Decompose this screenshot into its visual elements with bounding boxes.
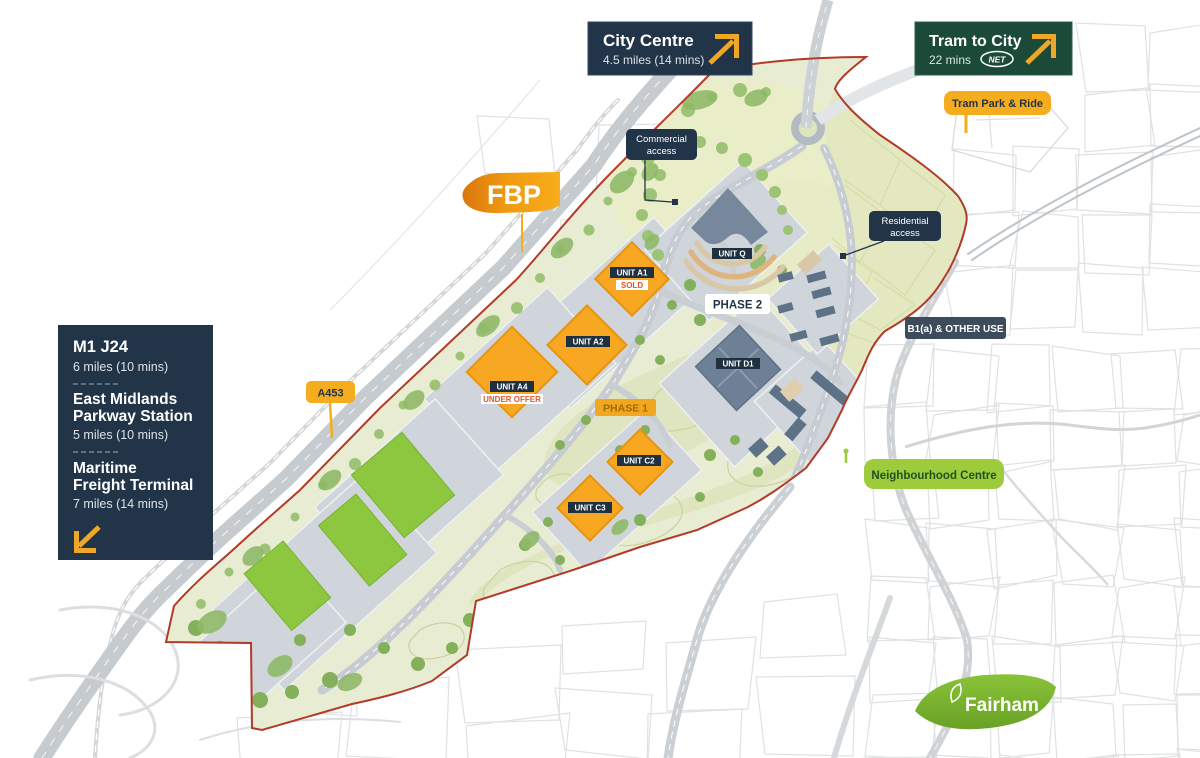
svg-text:Tram Park & Ride: Tram Park & Ride <box>952 98 1043 110</box>
svg-text:UNIT A4: UNIT A4 <box>497 383 528 392</box>
svg-text:Maritime: Maritime <box>73 460 137 477</box>
svg-text:East Midlands: East Midlands <box>73 391 177 408</box>
svg-text:B1(a) & OTHER USE: B1(a) & OTHER USE <box>907 324 1003 335</box>
svg-text:access: access <box>890 228 920 239</box>
svg-text:UNIT Q: UNIT Q <box>718 250 745 259</box>
svg-text:Parkway Station: Parkway Station <box>73 408 193 425</box>
svg-text:access: access <box>647 146 677 157</box>
svg-text:PHASE 2: PHASE 2 <box>713 300 762 312</box>
svg-text:UNDER OFFER: UNDER OFFER <box>483 395 541 404</box>
svg-text:UNIT A2: UNIT A2 <box>573 338 604 347</box>
svg-text:UNIT D1: UNIT D1 <box>722 360 754 369</box>
svg-text:6 miles (10 mins): 6 miles (10 mins) <box>73 360 168 374</box>
svg-text:City Centre: City Centre <box>603 31 694 50</box>
svg-text:PHASE 1: PHASE 1 <box>603 403 648 415</box>
svg-text:M1 J24: M1 J24 <box>73 338 129 356</box>
svg-text:Residential: Residential <box>882 216 929 227</box>
svg-text:SOLD: SOLD <box>621 281 643 290</box>
svg-text:UNIT C3: UNIT C3 <box>574 504 606 513</box>
svg-text:UNIT C2: UNIT C2 <box>623 457 655 466</box>
svg-text:Freight Terminal: Freight Terminal <box>73 477 193 494</box>
svg-text:Commercial: Commercial <box>636 134 687 145</box>
svg-text:UNIT A1: UNIT A1 <box>617 269 648 278</box>
svg-text:5 miles (10 mins): 5 miles (10 mins) <box>73 428 168 442</box>
svg-text:NET: NET <box>989 55 1007 65</box>
svg-text:4.5 miles (14 mins): 4.5 miles (14 mins) <box>603 53 704 67</box>
svg-text:Neighbourhood Centre: Neighbourhood Centre <box>871 470 996 482</box>
svg-text:A453: A453 <box>317 388 343 400</box>
svg-text:Fairham: Fairham <box>965 695 1039 716</box>
svg-text:Tram to City: Tram to City <box>929 33 1022 50</box>
svg-text:22 mins: 22 mins <box>929 53 971 67</box>
svg-text:FBP: FBP <box>487 180 541 210</box>
svg-text:7 miles (14 mins): 7 miles (14 mins) <box>73 497 168 511</box>
